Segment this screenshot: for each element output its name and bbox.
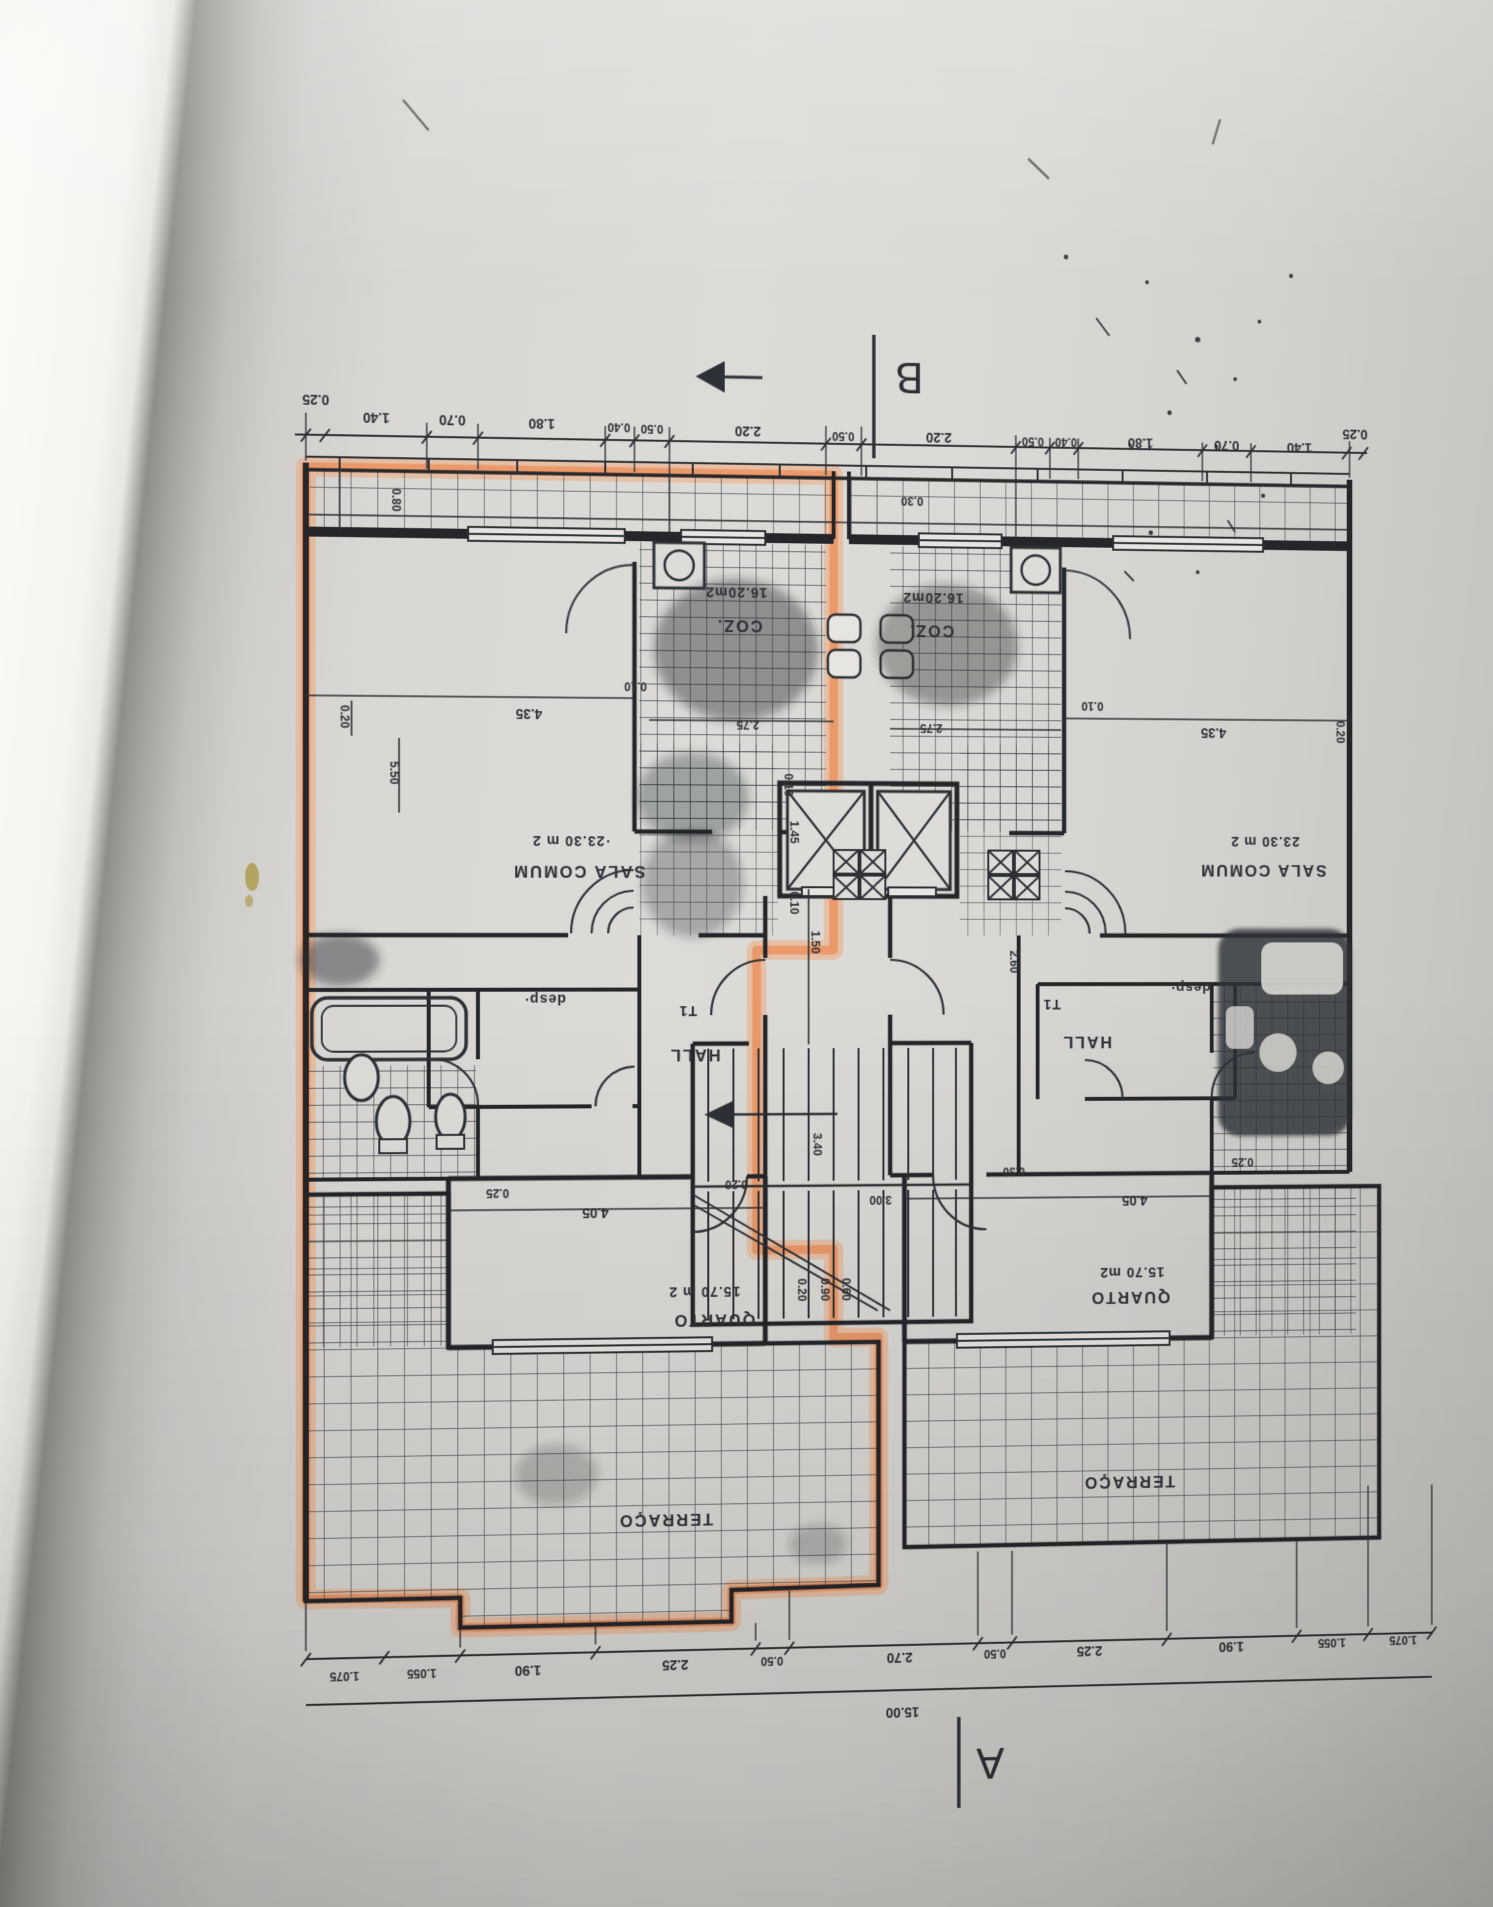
room-label-desp-right: desp· <box>1170 979 1211 995</box>
dim-bottom-0: 1.075 <box>329 1669 359 1684</box>
dim-sala-left-height: 5.50 <box>387 761 401 785</box>
dim-top-12: 0.70 <box>1214 438 1240 454</box>
dim-stair-run: 3.40 <box>811 1133 824 1156</box>
room-label-sala-right-area: 23.30 m 2 <box>1230 833 1299 849</box>
section-marker-b: B <box>895 353 923 401</box>
bath-right-fixtures <box>1218 929 1350 1136</box>
dim-bottom-5: 2.70 <box>886 1650 912 1666</box>
dim-stair-wall: 0.30 <box>1003 1165 1025 1179</box>
dim-top-14: 0.25 <box>1342 427 1367 443</box>
dim-top-6: 2.20 <box>735 423 761 439</box>
dim-quarto-right-sill: 0.25 <box>1231 1155 1253 1169</box>
dim-hall-left-wall: 0.20 <box>725 1177 748 1191</box>
dim-left-wall: 0.20 <box>338 705 352 729</box>
dim-top-1: 1.40 <box>363 410 390 426</box>
dim-top-0: 0.25 <box>302 392 329 408</box>
dim-bottom-3: 2.25 <box>662 1657 689 1673</box>
section-arrow-b <box>696 361 725 393</box>
dim-top-8: 2.20 <box>926 430 952 446</box>
dim-top-9: 0.50 <box>1022 434 1044 448</box>
dim-quarto-left-width: 4.05 <box>582 1205 609 1221</box>
dim-lobby-wall: 0.10 <box>787 891 800 914</box>
paper-stain <box>245 863 259 891</box>
dim-top-2: 0.70 <box>439 412 466 428</box>
room-label-terraco-right: TERRAÇO <box>1083 1472 1175 1492</box>
dim-top-11: 1.80 <box>1127 435 1153 451</box>
room-label-sala-right: SALA COMUM <box>1199 861 1326 880</box>
floorplan-svg: 0.25 1.40 0.70 1.80 0.40 0.50 2.20 0.50 … <box>0 0 1442 1907</box>
room-label-t1-left: T1 <box>679 1002 697 1018</box>
room-label-t1-right: T1 <box>1043 996 1061 1012</box>
dim-sala-right-width: 4.35 <box>1201 725 1227 741</box>
dim-elev-wall: 0.10 <box>782 773 795 796</box>
dim-elev-depth: 1.45 <box>787 821 800 844</box>
dim-stair-c: 0.60 <box>839 1278 852 1301</box>
dim-bottom-1: 1.055 <box>407 1666 437 1681</box>
room-label-quarto-left: QUARTO <box>673 1310 756 1330</box>
room-label-quarto-right: QUARTO <box>1090 1288 1170 1307</box>
dim-quarto-right-width: 4.05 <box>1122 1193 1148 1209</box>
dim-bottom-2: 1.90 <box>514 1662 541 1678</box>
dim-sala-right-gap: 0.10 <box>1081 699 1103 713</box>
dim-stair-a: 0.20 <box>795 1278 808 1301</box>
dim-bottom-10: 1.075 <box>1389 1633 1417 1647</box>
dim-entry-right: 2.60 <box>1007 950 1020 973</box>
dim-coz-left-width: 2.75 <box>736 718 759 732</box>
dim-bottom-7: 2.25 <box>1077 1643 1103 1659</box>
dim-lobby-width: 1.50 <box>809 931 822 954</box>
room-label-hall-right: HALL <box>1062 1033 1112 1052</box>
dim-bottom-8: 1.90 <box>1218 1639 1244 1655</box>
room-label-sala-left: SALA COMUM <box>512 862 645 881</box>
dim-right-wall: 0.20 <box>1334 721 1347 744</box>
room-label-quarto-left-area: 15.70 m 2 <box>668 1283 740 1300</box>
photographed-floorplan-page: 0.25 1.40 0.70 1.80 0.40 0.50 2.20 0.50 … <box>0 0 1493 1907</box>
section-marker-a: A <box>976 1738 1004 1786</box>
room-label-terraco-left: TERRAÇO <box>618 1510 713 1531</box>
room-label-coz-right-area: 16.20m2 <box>902 589 963 605</box>
dim-top-5: 0.50 <box>640 422 663 436</box>
dim-top-3: 1.80 <box>528 416 555 432</box>
dim-quarto-left-sill: 0.25 <box>486 1186 509 1200</box>
room-label-sala-left-area: ·23.30 m 2 <box>532 832 610 848</box>
dim-stair-width: 3.00 <box>869 1193 892 1207</box>
room-label-coz-right: COZ. <box>908 621 954 640</box>
dim-stair-b: 0.90 <box>818 1278 831 1301</box>
dim-total-width: 15.00 <box>886 1704 920 1720</box>
dim-sala-left-width: 4.35 <box>515 706 542 722</box>
dim-top-4: 0.40 <box>607 420 630 434</box>
dim-bottom-9: 1.055 <box>1318 1636 1346 1650</box>
dim-coz-right-width: 2.75 <box>920 721 943 735</box>
room-label-coz-left: COZ. <box>716 616 763 635</box>
dim-top-10: 0.40 <box>1055 435 1077 449</box>
room-label-coz-left-area: 16.20m2 <box>705 583 767 599</box>
floorplan-drawing-wrap: 0.25 1.40 0.70 1.80 0.40 0.50 2.20 0.50 … <box>0 0 1442 1907</box>
dim-balcony-depth: 0.80 <box>389 488 403 512</box>
dim-bottom-4: 0.50 <box>760 1654 783 1668</box>
dim-bottom-6: 0.50 <box>984 1647 1006 1661</box>
dim-top-7: 0.50 <box>832 429 855 443</box>
room-label-quarto-right-area: 15.70 m2 <box>1099 1263 1164 1279</box>
dim-balcony-center: 0.30 <box>901 494 924 508</box>
room-label-hall-left: HALL <box>669 1046 721 1065</box>
dim-top-13: 1.40 <box>1287 440 1312 456</box>
windows <box>468 527 1263 1354</box>
dim-sala-left-gap: 0.10 <box>624 679 647 693</box>
room-label-desp-left: desp· <box>523 991 566 1007</box>
